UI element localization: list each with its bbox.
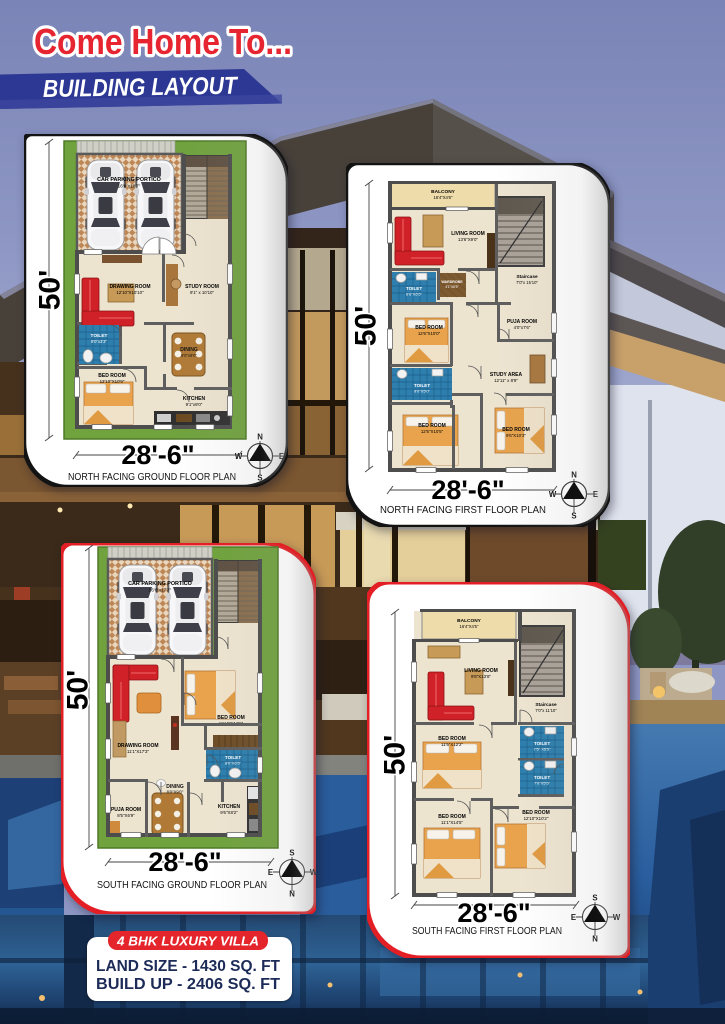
- svg-text:50': 50': [379, 735, 412, 776]
- svg-text:16'6"x17'7": 16'6"x17'7": [149, 588, 172, 593]
- svg-text:TOILET: TOILET: [414, 383, 430, 388]
- svg-text:9'0"x3'3": 9'0"x3'3": [91, 339, 107, 344]
- svg-text:8'0"X9'0": 8'0"X9'0": [167, 790, 184, 795]
- svg-text:LAND SIZE - 1430 SQ. FT: LAND SIZE - 1430 SQ. FT: [96, 958, 280, 975]
- svg-text:13'6"X9'0": 13'6"X9'0": [458, 237, 478, 242]
- svg-text:Come Home To...: Come Home To...: [34, 21, 292, 62]
- svg-text:CAR PARKING PORTICO: CAR PARKING PORTICO: [97, 177, 161, 183]
- svg-text:BUILDING LAYOUT: BUILDING LAYOUT: [43, 73, 239, 103]
- svg-text:11'1"X14'5": 11'1"X14'5": [441, 820, 463, 825]
- svg-text:TOILET: TOILET: [406, 286, 422, 291]
- svg-text:11'5"X12'2": 11'5"X12'2": [441, 742, 463, 747]
- svg-text:11'1"X17'3": 11'1"X17'3": [127, 749, 149, 754]
- svg-text:4 BHK LUXURY VILLA: 4 BHK LUXURY VILLA: [116, 934, 259, 949]
- svg-text:9'8"X13'8": 9'8"X13'8": [471, 674, 491, 679]
- svg-text:16'4"X4'5": 16'4"X4'5": [459, 624, 479, 629]
- svg-text:50': 50': [34, 270, 67, 311]
- svg-text:12'5"X10'5": 12'5"X10'5": [421, 429, 444, 434]
- svg-text:8'5"X6'9": 8'5"X6'9": [117, 813, 135, 818]
- svg-text:50': 50': [62, 670, 95, 711]
- svg-text:6'6"X6'5": 6'6"X6'5": [406, 292, 423, 297]
- svg-text:12'10"X10'9": 12'10"X10'9": [100, 379, 125, 384]
- svg-text:4'1"X6'5": 4'1"X6'5": [445, 285, 459, 289]
- svg-text:WARDROBE: WARDROBE: [441, 280, 463, 284]
- svg-text:28'-6": 28'-6": [431, 475, 504, 505]
- svg-text:CAR PARKING PORTICO: CAR PARKING PORTICO: [128, 581, 192, 587]
- svg-text:16'4"X4'6": 16'4"X4'6": [433, 195, 453, 200]
- svg-text:BUILD UP - 2406 SQ. FT: BUILD UP - 2406 SQ. FT: [96, 976, 280, 993]
- svg-text:50': 50': [350, 306, 383, 347]
- svg-text:12'6"X10'0": 12'6"X10'0": [418, 331, 441, 336]
- svg-text:28'-6": 28'-6": [148, 847, 221, 877]
- svg-text:16'6"x18'7": 16'6"x18'7": [118, 184, 141, 189]
- svg-text:9'0"X5'0": 9'0"X5'0": [414, 389, 431, 394]
- svg-text:12'10"X10'10": 12'10"X10'10": [116, 290, 144, 295]
